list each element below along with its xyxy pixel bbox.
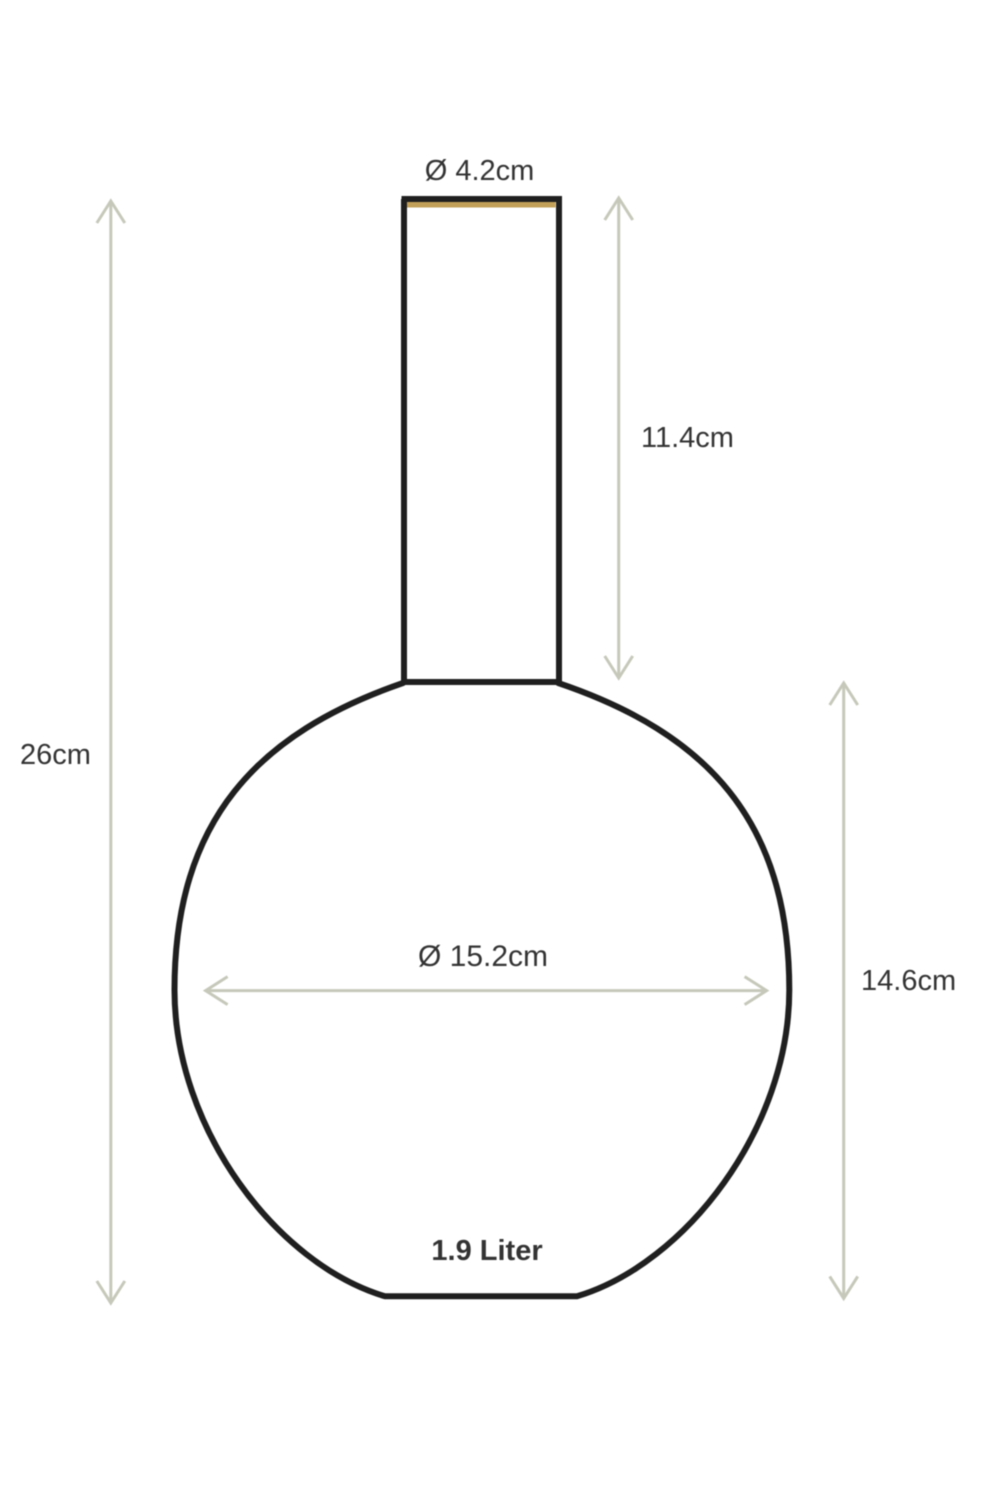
- svg-text:Ø 15.2cm: Ø 15.2cm: [418, 940, 548, 973]
- svg-text:14.6cm: 14.6cm: [861, 965, 956, 997]
- svg-text:1.9 Liter: 1.9 Liter: [431, 1235, 542, 1267]
- svg-text:Ø 4.2cm: Ø 4.2cm: [425, 155, 535, 187]
- svg-text:11.4cm: 11.4cm: [641, 422, 734, 454]
- svg-text:26cm: 26cm: [20, 739, 91, 771]
